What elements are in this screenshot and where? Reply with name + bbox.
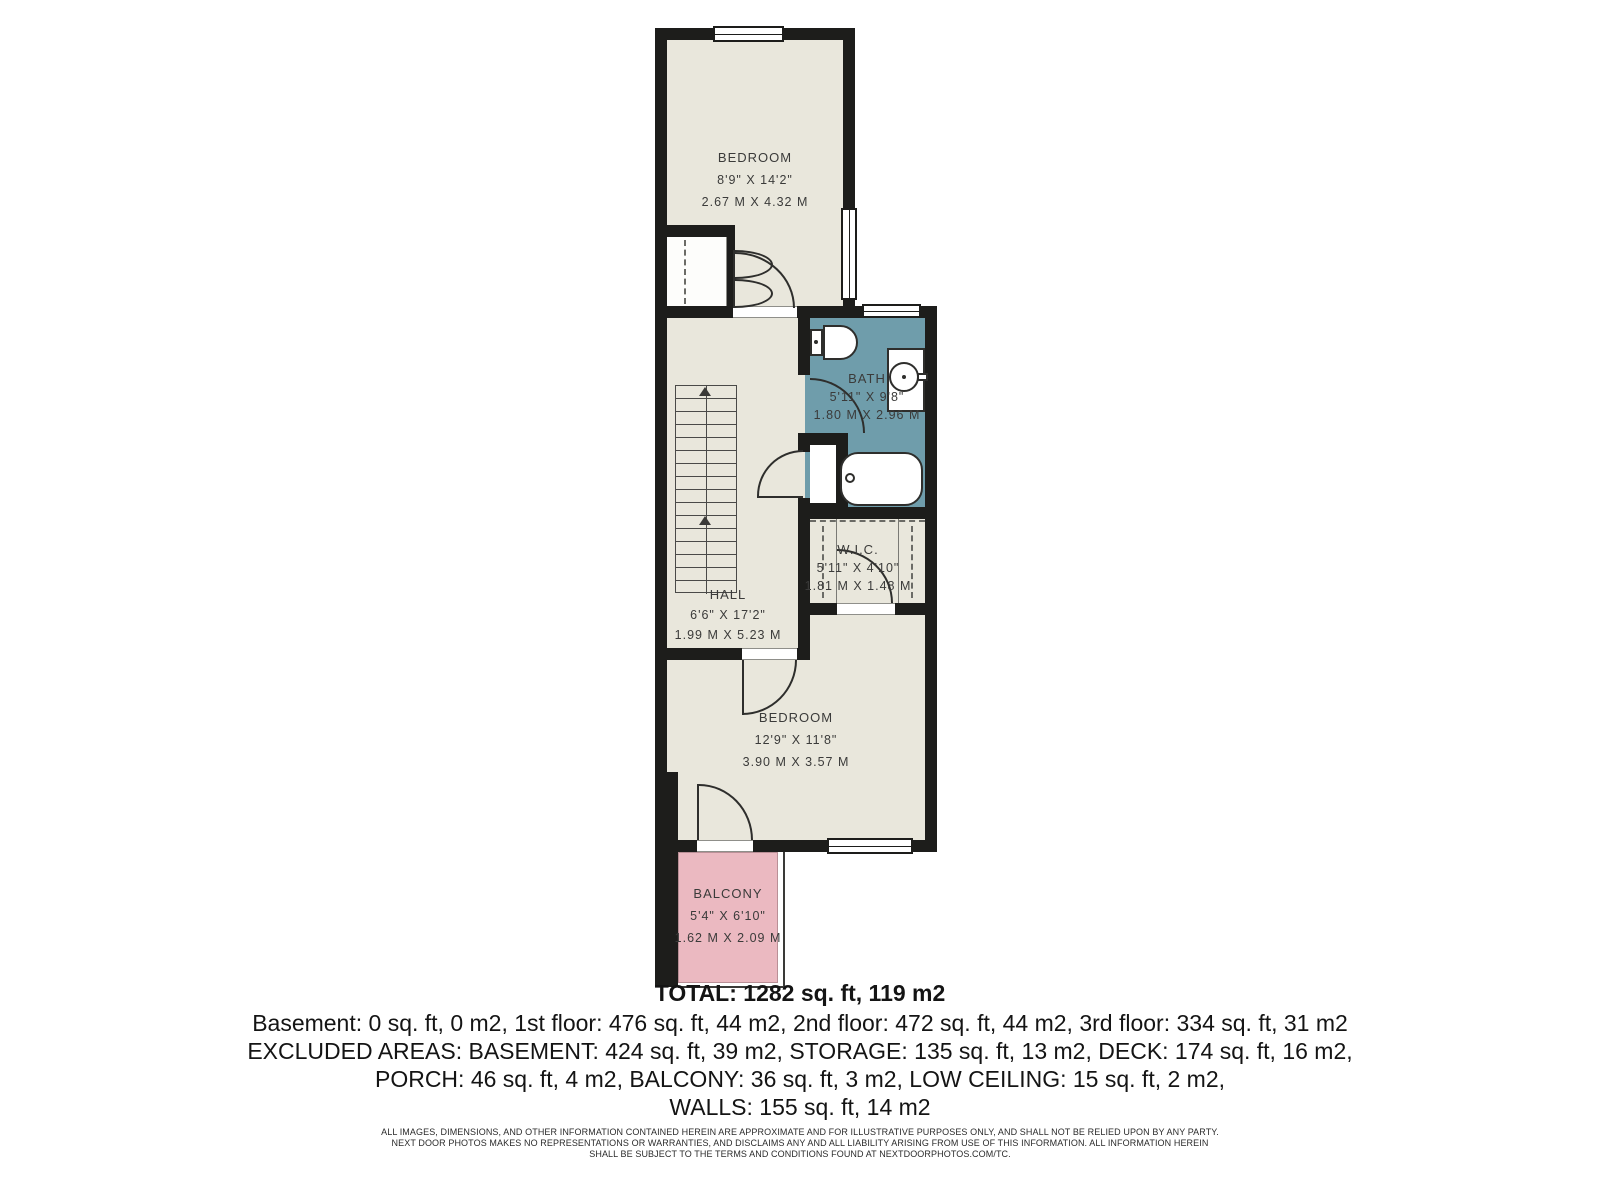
closet: [667, 237, 727, 307]
wall: [797, 648, 810, 660]
wic-rod-line: [810, 520, 925, 522]
wall: [655, 306, 733, 318]
room-name: W.I.C.: [748, 541, 968, 559]
room-dim-imperial: 5'4" X 6'10": [618, 905, 838, 927]
total-area-text: TOTAL: 1282 sq. ft, 119 m2: [0, 980, 1600, 1007]
walls-area-text: WALLS: 155 sq. ft, 14 m2: [0, 1094, 1600, 1121]
window: [827, 838, 913, 854]
wall: [910, 840, 937, 852]
room-dim-imperial: 12'9" X 11'8": [686, 729, 906, 751]
tub-faucet: [845, 473, 855, 483]
room-dim-metric: 1.99 M X 5.23 M: [618, 625, 838, 645]
room-label-bedroom-upper: BEDROOM 8'9" X 14'2" 2.67 M X 4.32 M: [645, 147, 865, 213]
stair-center-rail: [706, 386, 707, 594]
staircase: [675, 385, 737, 593]
closet-rod-line: [684, 240, 686, 304]
room-dim-imperial: 6'6" X 17'2": [618, 605, 838, 625]
room-name: BATH: [757, 370, 977, 388]
room-label-balcony: BALCONY 5'4" X 6'10" 1.62 M X 2.09 M: [618, 883, 838, 949]
wall: [655, 772, 678, 987]
excluded-areas-text-1: EXCLUDED AREAS: BASEMENT: 424 sq. ft, 39…: [0, 1038, 1600, 1065]
room-label-bath: BATH 5'11" X 9'8" 1.80 M X 2.96 M: [757, 370, 977, 424]
room-name: HALL: [618, 585, 838, 605]
room-name: BALCONY: [618, 883, 838, 905]
room-dim-imperial: 8'9" X 14'2": [645, 169, 865, 191]
window: [841, 208, 857, 300]
wall: [655, 648, 742, 660]
wall: [798, 318, 810, 375]
disclaimer-line: ALL IMAGES, DIMENSIONS, AND OTHER INFORM…: [0, 1127, 1600, 1137]
room-dim-metric: 2.67 M X 4.32 M: [645, 191, 865, 213]
disclaimer-line: SHALL BE SUBJECT TO THE TERMS AND CONDIT…: [0, 1149, 1600, 1159]
toilet-bowl: [823, 325, 858, 360]
wall: [655, 28, 717, 40]
room-name: BEDROOM: [645, 147, 865, 169]
door-threshold: [742, 648, 797, 660]
disclaimer-line: NEXT DOOR PHOTOS MAKES NO REPRESENTATION…: [0, 1138, 1600, 1148]
room-label-hall: HALL 6'6" X 17'2" 1.99 M X 5.23 M: [618, 585, 838, 645]
door-threshold: [837, 603, 895, 615]
room-dim-imperial: 5'11" X 9'8": [757, 388, 977, 406]
window: [862, 304, 921, 318]
stair-up-arrow-icon: [699, 387, 711, 396]
wall: [655, 225, 735, 237]
floor-plan-page: BEDROOM 8'9" X 14'2" 2.67 M X 4.32 M BAT…: [0, 0, 1600, 1200]
floor-areas-text: Basement: 0 sq. ft, 0 m2, 1st floor: 476…: [0, 1010, 1600, 1037]
room-dim-metric: 3.90 M X 3.57 M: [686, 751, 906, 773]
door-threshold: [697, 840, 753, 852]
room-dim-imperial: 5'11" X 4'10": [748, 559, 968, 577]
linen-niche: [810, 445, 836, 503]
toilet-button: [814, 340, 818, 344]
door-leaf: [757, 496, 803, 498]
window: [713, 26, 784, 42]
room-label-bedroom-lower: BEDROOM 12'9" X 11'8" 3.90 M X 3.57 M: [686, 707, 906, 773]
room-dim-metric: 1.62 M X 2.09 M: [618, 927, 838, 949]
excluded-areas-text-2: PORCH: 46 sq. ft, 4 m2, BALCONY: 36 sq. …: [0, 1066, 1600, 1093]
stair-up-arrow-icon: [699, 516, 711, 525]
wall: [895, 603, 937, 615]
room-name: BEDROOM: [686, 707, 906, 729]
room-dim-metric: 1.80 M X 2.96 M: [757, 406, 977, 424]
wall: [753, 840, 830, 852]
wall: [678, 840, 697, 852]
wall: [798, 507, 937, 519]
